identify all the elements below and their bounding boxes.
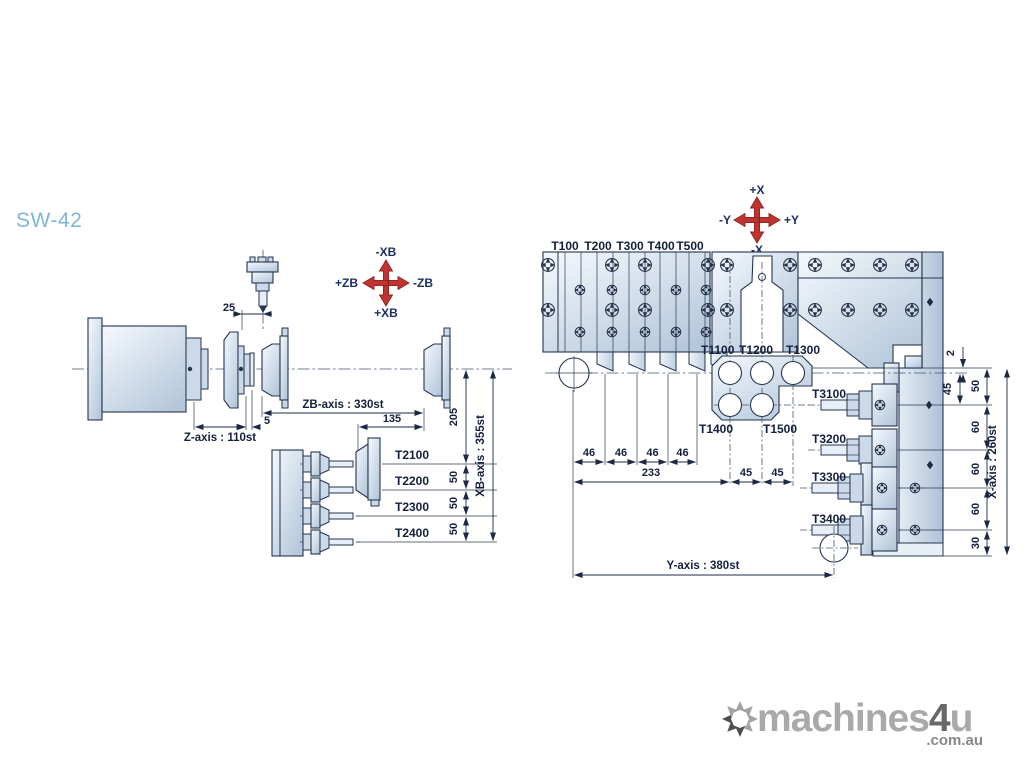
guide-bushing (224, 332, 254, 408)
dim-46-3: 46 (646, 447, 658, 459)
label-t1400: T1400 (699, 422, 733, 436)
sub-spindle-left-pos (262, 328, 288, 408)
label-t100: T100 (551, 239, 579, 253)
tool-t2200 (300, 478, 360, 502)
tool-sleeve-flange (356, 438, 380, 506)
dim-205-label: 205 (448, 408, 460, 426)
dim-46-1: 46 (583, 447, 595, 459)
dim-y-axis: Y-axis : 380st (575, 560, 833, 575)
axis-label-plus-xb: +XB (374, 306, 398, 320)
gang-tool-block-left (272, 438, 380, 556)
label-t2100: T2100 (395, 448, 429, 462)
page-title: SW-42 (16, 209, 82, 232)
dim-chain-60a: 60 (970, 421, 982, 433)
axis-label-minus-zb: -ZB (413, 276, 433, 290)
main-spindle (88, 318, 208, 420)
dim-46-4: 46 (676, 447, 688, 459)
axis-label-minus-xb: -XB (376, 245, 397, 259)
back-tool-t3200: T3200 (808, 429, 902, 471)
label-t1200: T1200 (739, 343, 773, 357)
dim-chain-30: 30 (970, 537, 982, 549)
workpiece-circle-gang (556, 356, 592, 392)
tool-t2300 (300, 504, 360, 528)
tool-t2400 (300, 530, 360, 554)
dim-z-axis: Z-axis : 110st (184, 402, 256, 444)
axis-label-minus-y: -Y (719, 213, 731, 227)
label-t300: T300 (616, 239, 644, 253)
xb-axis-label: XB-axis : 355st (475, 415, 487, 497)
dim-chain-50: 50 (970, 380, 982, 392)
dim-25-label: 25 (223, 302, 235, 314)
label-t3200: T3200 (812, 432, 846, 446)
label-t400: T400 (647, 239, 675, 253)
dim-x-axis: X-axis : 260st (987, 370, 1007, 555)
watermark-domain: .com.au (926, 732, 983, 749)
right-view: T100 T200 T300 T400 T500 (541, 239, 1007, 578)
gang-plate (543, 252, 727, 371)
z-axis-label: Z-axis : 110st (184, 432, 256, 444)
x-axis-label: X-axis : 260st (987, 425, 999, 499)
dim-45h-2: 45 (771, 467, 783, 479)
tool-t2100 (300, 452, 360, 476)
dim-50-3: 50 (448, 523, 460, 535)
dim-chain-60b: 60 (970, 463, 982, 475)
gang-labels: T100 T200 T300 T400 T500 (551, 239, 704, 253)
extension-lines (573, 374, 697, 578)
zb-axis-label: ZB-axis : 330st (302, 399, 383, 411)
dim-233-label: 233 (642, 467, 660, 479)
dim-50-2: 50 (448, 497, 460, 509)
label-t500: T500 (676, 239, 704, 253)
dim-46-2: 46 (615, 447, 627, 459)
label-t1100: T1100 (701, 343, 735, 357)
y-axis-label: Y-axis : 380st (667, 560, 740, 572)
left-vertical-dims: 205 50 50 50 XB-axis : 355st (448, 371, 493, 541)
label-t1300: T1300 (786, 343, 820, 357)
dim-135-label: 135 (383, 413, 401, 425)
axis-label-plus-y: +Y (784, 213, 799, 227)
axis-label-plus-x: +X (749, 183, 764, 197)
dim-50-1: 50 (448, 471, 460, 483)
back-tool-t3100: T3100 (808, 384, 902, 426)
dim-5-label: 5 (264, 415, 270, 427)
axis-label-plus-zb: +ZB (335, 276, 358, 290)
dim-45h-1: 45 (740, 467, 752, 479)
label-t200: T200 (584, 239, 612, 253)
dim-2-label: 2 (945, 350, 957, 356)
sw42-tool-layout-diagram: SW-42 (0, 0, 1024, 768)
dim-5: 5 (238, 390, 270, 430)
dims-233-45: 233 45 45 (575, 467, 792, 482)
dim-chain-60c: 60 (970, 503, 982, 515)
left-view: 25 ZB-axis : 330st 135 (72, 250, 512, 556)
label-t2200: T2200 (395, 474, 429, 488)
axis-cross-x-y: +X -X -Y +Y (719, 183, 799, 257)
label-t3400: T3400 (812, 512, 846, 526)
sub-spindle-right-pos (424, 328, 450, 408)
label-t2300: T2300 (395, 500, 429, 514)
cross-drill-tool (247, 250, 278, 330)
label-t3300: T3300 (812, 470, 846, 484)
machines4u-logo-icon (722, 701, 758, 737)
label-t3100: T3100 (812, 387, 846, 401)
dim-45v-label: 45 (942, 383, 954, 395)
label-t2400: T2400 (395, 526, 429, 540)
axis-cross-xb-zb: -XB +XB +ZB -ZB (335, 245, 433, 320)
center-tower (712, 252, 798, 352)
diagram-page: SW-42 (0, 0, 1024, 768)
label-t1500: T1500 (763, 422, 797, 436)
watermark: machines4u .com.au (722, 697, 983, 749)
dims-46: 46 46 46 46 (575, 447, 696, 462)
